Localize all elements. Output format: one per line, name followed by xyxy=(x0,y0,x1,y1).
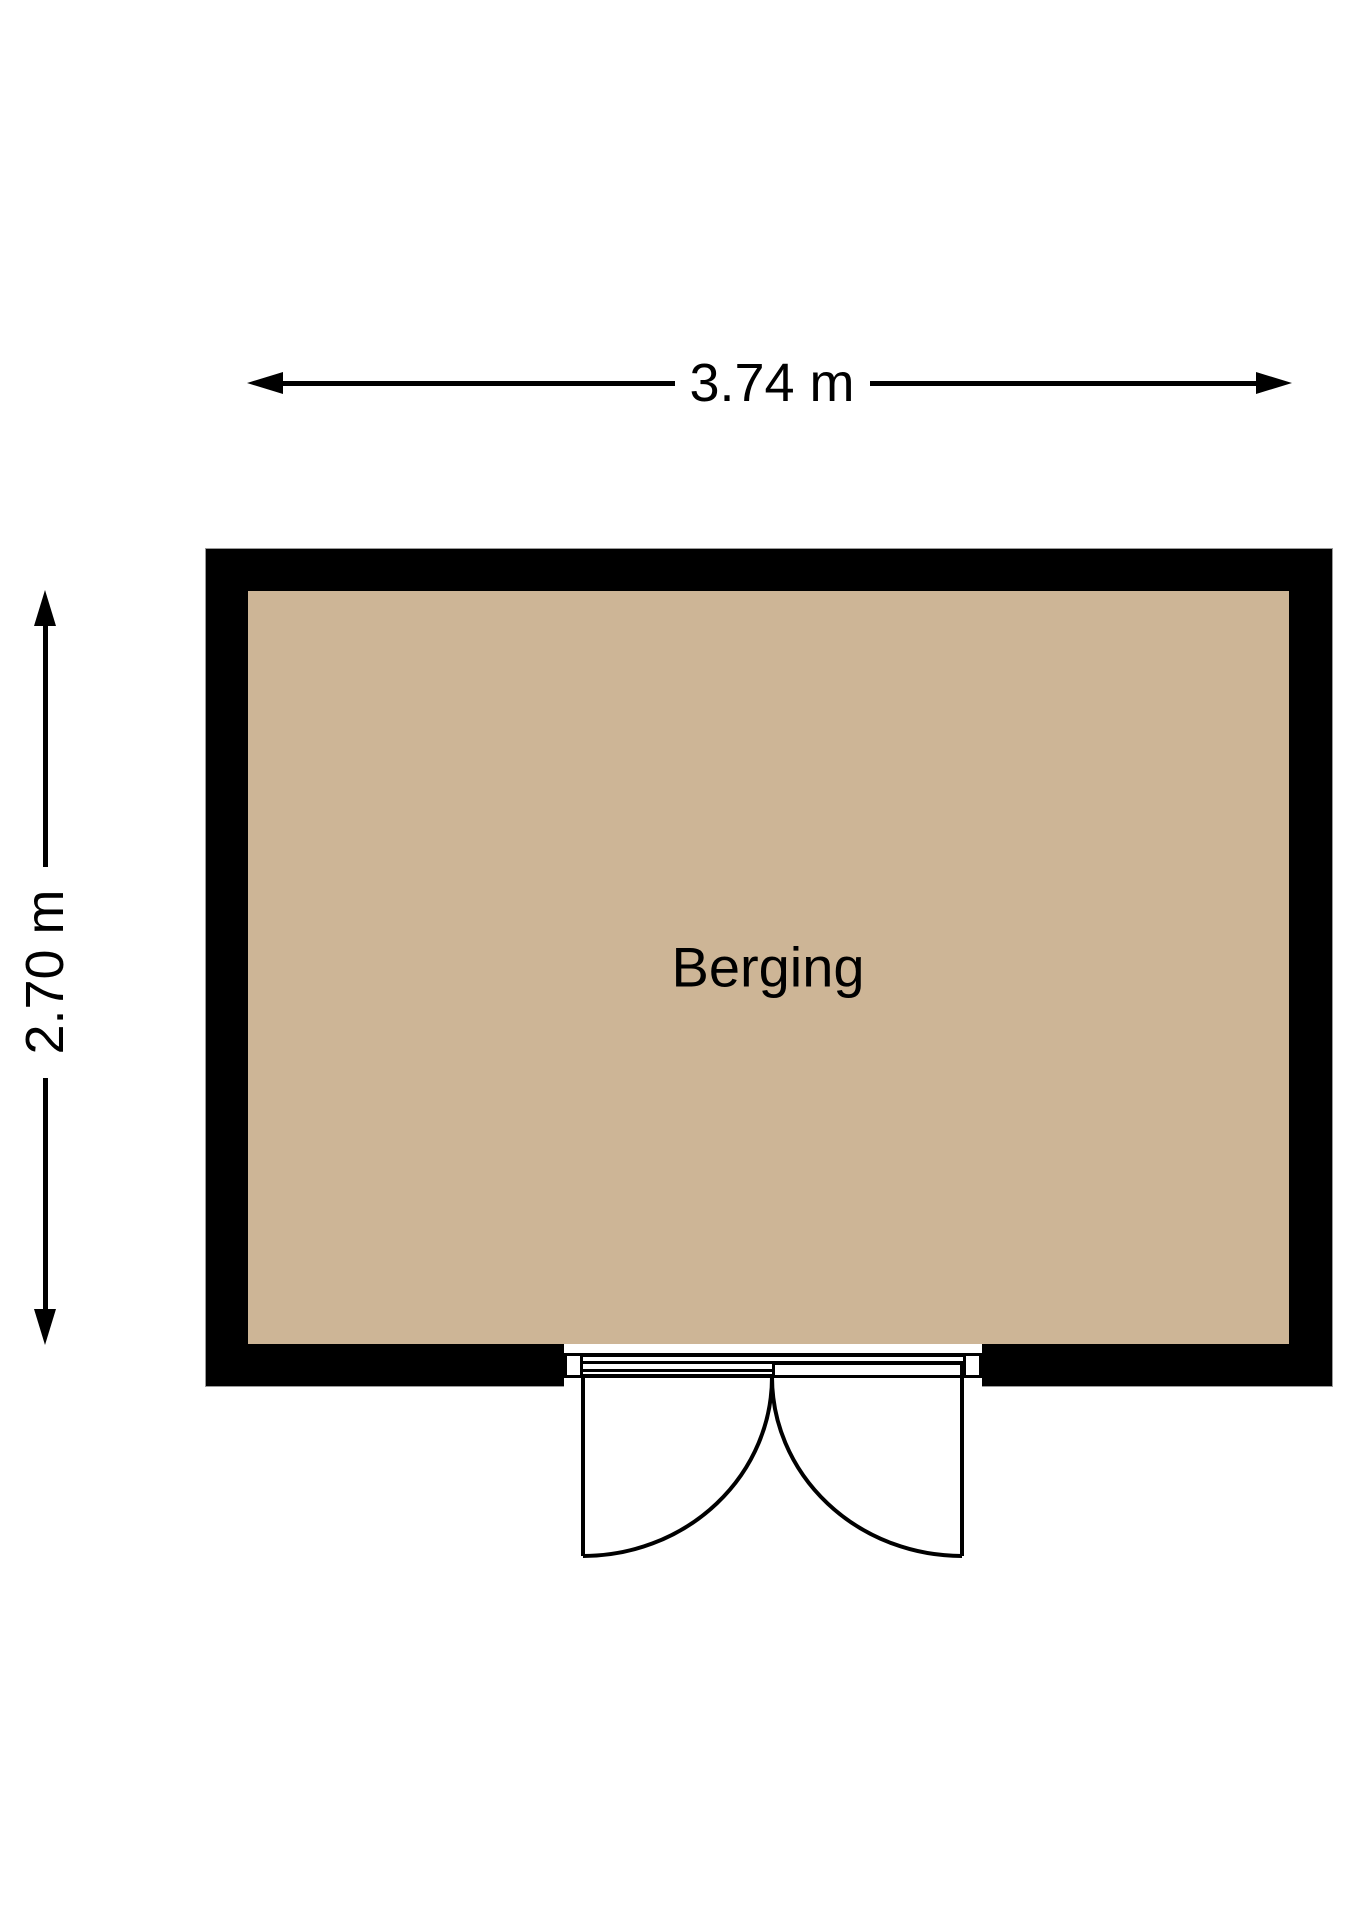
floorplan-canvas: 3.74 m 2.70 m Berging xyxy=(0,0,1358,1920)
width-arrowhead-right-icon xyxy=(1256,372,1292,394)
width-dimension-line-left xyxy=(278,381,675,386)
width-dimension-line-right xyxy=(870,381,1261,386)
door-swing-arc-left xyxy=(583,1377,772,1556)
height-dimension-line-top xyxy=(43,622,48,867)
door-swing-arcs xyxy=(560,1344,980,1564)
height-arrowhead-top-icon xyxy=(34,590,56,626)
height-dimension-label: 2.70 m xyxy=(18,889,72,1054)
width-dimension-label: 3.74 m xyxy=(689,356,854,410)
door-swing-arc-right xyxy=(772,1377,962,1556)
room-label: Berging xyxy=(671,935,864,1000)
height-dimension-line-bottom xyxy=(43,1078,48,1313)
height-arrowhead-bottom-icon xyxy=(34,1309,56,1345)
